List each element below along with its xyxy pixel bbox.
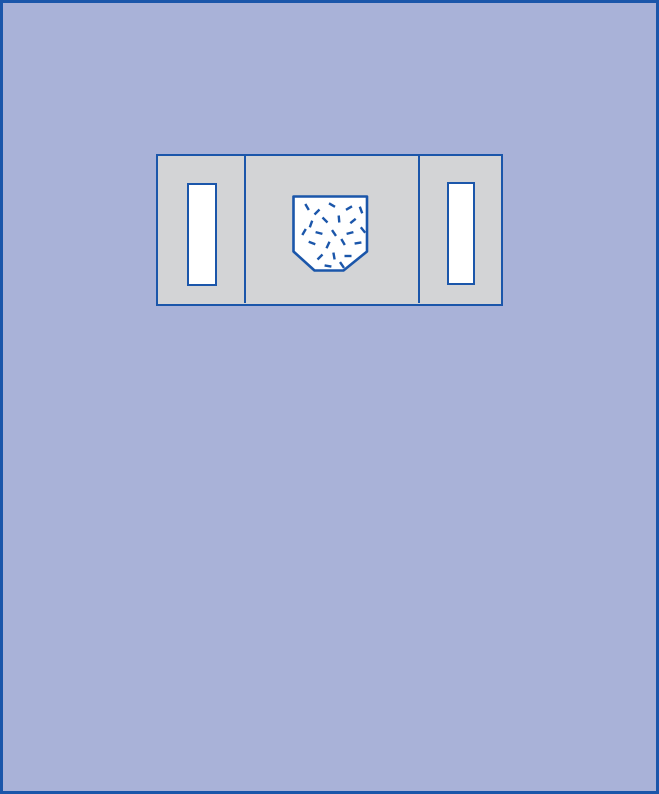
granule-dash	[338, 215, 339, 222]
granule-dash	[333, 252, 334, 259]
left-window	[187, 183, 217, 286]
divider-line-right	[418, 156, 421, 303]
granule-pouch	[289, 192, 373, 276]
diagram-background	[0, 0, 659, 794]
granule-dash	[324, 265, 331, 266]
component-body	[156, 154, 503, 306]
right-window	[447, 182, 475, 285]
granule-dash	[354, 242, 361, 243]
divider-line-left	[244, 156, 247, 303]
